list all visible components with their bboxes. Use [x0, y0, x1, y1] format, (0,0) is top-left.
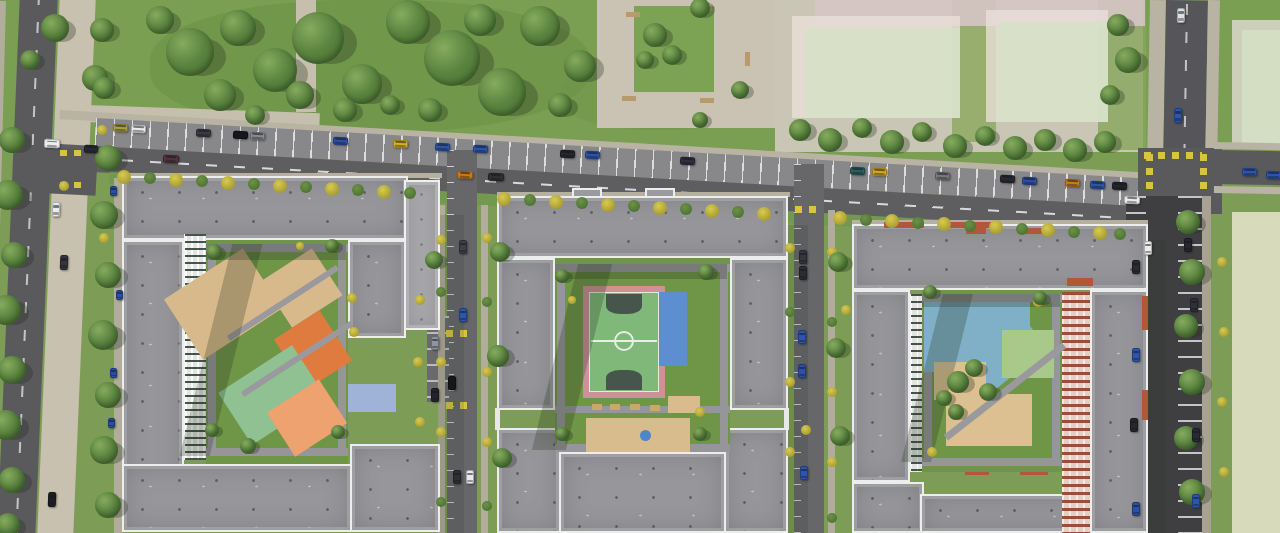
yellow-bush [482, 233, 492, 243]
bush [524, 194, 536, 206]
left-block-north-wing [122, 176, 408, 240]
car [1000, 175, 1015, 184]
right-block-sw-corner [852, 482, 924, 533]
pale-field-east [1232, 212, 1280, 533]
car [196, 129, 211, 138]
tree [425, 251, 443, 269]
yellow-bush [59, 181, 69, 191]
car [1266, 171, 1280, 179]
ghost-building-roof [1242, 30, 1280, 148]
tree [818, 128, 842, 152]
bush [1016, 223, 1028, 235]
car [800, 466, 808, 480]
car [431, 388, 439, 402]
ghost-building-roof [998, 22, 1108, 122]
sand-play-big [586, 418, 690, 452]
connector-wall [784, 408, 789, 430]
yellow-bush [801, 425, 811, 435]
bush [576, 197, 588, 209]
tree [662, 45, 682, 65]
car [250, 132, 265, 141]
tree [1115, 47, 1141, 73]
car [1144, 241, 1152, 255]
bush [732, 206, 744, 218]
tree [146, 6, 174, 34]
tree [424, 30, 480, 86]
tree [693, 427, 707, 441]
car [488, 173, 504, 182]
tree [1107, 14, 1129, 36]
connector-wall [495, 408, 500, 430]
tree [880, 130, 904, 154]
tree [826, 338, 846, 358]
yellow-bush [1041, 223, 1055, 237]
yellow-bush [349, 327, 359, 337]
car [680, 157, 695, 166]
tree [333, 98, 357, 122]
car [1090, 181, 1105, 190]
yellow-bush [377, 185, 391, 199]
tree [95, 262, 121, 288]
terracotta-accent [1067, 278, 1093, 286]
bush [680, 203, 692, 215]
yellow-bush [568, 296, 576, 304]
tree [975, 126, 995, 146]
tree [490, 242, 510, 262]
umbrella-blue [640, 430, 651, 441]
tree [965, 359, 983, 377]
car [163, 155, 179, 164]
tree [828, 252, 848, 272]
bench [745, 52, 750, 66]
tree [245, 105, 265, 125]
tree [1033, 291, 1047, 305]
left-block-se-wing [350, 444, 440, 532]
tree [698, 264, 714, 280]
car [435, 143, 450, 152]
bush [827, 513, 837, 523]
bush [912, 217, 924, 229]
yellow-bush [436, 235, 446, 245]
bush [144, 172, 156, 184]
right-parking-sidewalk [1202, 196, 1211, 533]
bush [964, 220, 976, 232]
tree [1034, 129, 1056, 151]
play-equipment [650, 405, 660, 411]
bush [785, 307, 795, 317]
yellow-bush [827, 387, 837, 397]
car [1132, 502, 1140, 516]
tree [936, 390, 952, 406]
car [393, 140, 408, 149]
bench [626, 12, 640, 17]
tree [947, 371, 969, 393]
yellow-bush [1219, 467, 1229, 477]
bush [1114, 228, 1126, 240]
car [48, 492, 57, 507]
yellow-bush [841, 305, 851, 315]
tree [331, 425, 345, 439]
yellow-bush [325, 182, 339, 196]
tree [692, 112, 708, 128]
car [113, 124, 128, 133]
bush [352, 184, 364, 196]
tree [1179, 369, 1205, 395]
yellow-bush [99, 233, 109, 243]
east-branch-sidewalk [1214, 142, 1280, 150]
tree [643, 23, 667, 47]
tree [380, 95, 400, 115]
car [108, 418, 115, 428]
bush [860, 214, 872, 226]
play-equipment [610, 404, 620, 410]
tree [386, 0, 430, 44]
tree [93, 77, 115, 99]
yellow-bush [785, 243, 795, 253]
yellow-bush [296, 242, 304, 250]
workout-pad-blue [659, 292, 687, 366]
car [110, 186, 117, 196]
yellow-bush [885, 214, 899, 228]
car [431, 336, 439, 350]
tree [564, 50, 596, 82]
tree [1063, 138, 1087, 162]
tree [220, 10, 256, 46]
car [84, 145, 98, 154]
tree [555, 427, 569, 441]
tree [1179, 259, 1205, 285]
car [1190, 298, 1198, 312]
courtyard-path [206, 448, 348, 456]
court-center-circle [614, 331, 634, 351]
car [798, 330, 806, 344]
yellow-bush [415, 295, 425, 305]
bench [622, 96, 636, 101]
courtyard-path [720, 264, 728, 452]
tree [979, 383, 997, 401]
yellow-bush [413, 357, 423, 367]
yellow-bush [1219, 327, 1229, 337]
tree [555, 269, 569, 283]
car [1192, 494, 1200, 508]
tree [325, 239, 339, 253]
car [457, 171, 473, 180]
car [1132, 348, 1140, 362]
ghost-building-roof [806, 28, 960, 118]
yellow-bush [549, 195, 563, 209]
tree [948, 404, 964, 420]
bush [300, 181, 312, 193]
car [1112, 182, 1127, 191]
middle-block-bump [572, 188, 602, 198]
yellow-bush [785, 447, 795, 457]
tree [1094, 131, 1116, 153]
tree [292, 12, 344, 64]
tree [88, 320, 118, 350]
left-block-south-wing [122, 464, 352, 532]
crossing-yellow [795, 206, 823, 213]
car [453, 470, 461, 484]
car [1132, 260, 1140, 274]
tree [487, 345, 509, 367]
yellow-bush [601, 198, 615, 212]
play-equipment [592, 404, 602, 410]
tree [286, 81, 314, 109]
middle-block-bump [645, 188, 675, 198]
car [798, 364, 806, 378]
yellow-bush [117, 170, 131, 184]
car [1242, 168, 1257, 176]
bush [196, 175, 208, 187]
yellow-bush [1217, 257, 1227, 267]
tree [1003, 136, 1027, 160]
courtyard-path [1052, 294, 1060, 466]
crossing-yellow [60, 150, 86, 156]
car [799, 250, 807, 264]
yellow-bush [97, 125, 107, 135]
tree [166, 28, 214, 76]
tree [464, 4, 496, 36]
yellow-bush [221, 176, 235, 190]
yellow-bush [937, 217, 951, 231]
tree [1174, 314, 1198, 338]
tree [206, 244, 222, 260]
tree [41, 14, 69, 42]
tree [95, 145, 121, 171]
car [1022, 177, 1037, 186]
tree [789, 119, 811, 141]
tree [548, 93, 572, 117]
bush [482, 501, 492, 511]
tree [852, 118, 872, 138]
bush [628, 200, 640, 212]
middle-block-south-wing [559, 452, 726, 533]
tree [1176, 210, 1200, 234]
car [333, 137, 348, 146]
east-branch-sidewalk [1214, 186, 1280, 194]
right-block-east-wing [1090, 290, 1148, 533]
bush [1068, 226, 1080, 238]
car [1184, 238, 1192, 252]
car [1177, 8, 1185, 23]
tree [95, 492, 121, 518]
car [52, 202, 61, 217]
car [473, 145, 488, 154]
tree [205, 423, 219, 437]
car [1124, 196, 1140, 205]
yellow-bush [497, 192, 511, 206]
yellow-bush [705, 204, 719, 218]
yellow-bush [169, 173, 183, 187]
car [585, 151, 600, 160]
court-key-bottom [606, 370, 642, 390]
tree [912, 122, 932, 142]
car [466, 470, 474, 484]
yellow-bush [989, 220, 1003, 234]
tree [943, 134, 967, 158]
right-block-east-facade [1062, 292, 1090, 533]
yellow-bush [436, 427, 446, 437]
bush [436, 497, 446, 507]
car [459, 240, 467, 254]
car [110, 368, 117, 378]
tree [478, 68, 526, 116]
bush [404, 187, 416, 199]
car [872, 168, 887, 177]
tree [830, 426, 850, 446]
bush [436, 287, 446, 297]
court-key-top [606, 294, 642, 314]
yellow-bush [927, 447, 937, 457]
yellow-bush [827, 457, 837, 467]
yellow-bush [695, 407, 705, 417]
car [459, 308, 467, 322]
left-block-east-wing-upper [348, 240, 406, 338]
tree [95, 382, 121, 408]
terracotta-accent [1142, 296, 1148, 330]
bush [248, 178, 260, 190]
bush [482, 297, 492, 307]
tree [0, 467, 25, 493]
tree [923, 285, 937, 299]
car [131, 125, 146, 134]
car [116, 290, 123, 300]
middle-block-se-corner [724, 428, 788, 533]
car [233, 131, 248, 140]
play-equipment [630, 404, 640, 410]
car [44, 139, 60, 149]
car [1174, 108, 1182, 123]
car [60, 255, 69, 270]
tree [636, 51, 654, 69]
tree [418, 98, 442, 122]
yellow-bush [1093, 226, 1107, 240]
tree [0, 127, 25, 153]
car [1065, 179, 1080, 188]
tree [90, 436, 118, 464]
yellow-bush [653, 201, 667, 215]
courtyard-path [922, 458, 1062, 466]
block-shadow-east [1146, 240, 1166, 533]
car [1192, 428, 1200, 442]
yellow-bush [1217, 397, 1227, 407]
middle-block-north-wing [497, 196, 788, 258]
terracotta-accent [1142, 390, 1148, 420]
tree [492, 448, 512, 468]
bush [827, 317, 837, 327]
yellow-bush [273, 179, 287, 193]
bench [700, 98, 714, 103]
tree [1100, 85, 1120, 105]
yellow-bush [757, 207, 771, 221]
blue-pad-left-block [348, 384, 396, 412]
yellow-bush [833, 211, 847, 225]
car [1130, 418, 1138, 432]
car [850, 167, 865, 176]
sidewalk-west-of-left-block [114, 178, 122, 533]
yellow-bush [482, 437, 492, 447]
car [448, 376, 456, 390]
yellow-bush [482, 367, 492, 377]
tree [1, 242, 27, 268]
tree [20, 50, 40, 70]
right-block-west-wing [852, 290, 910, 482]
tree [731, 81, 749, 99]
middle-block-east-wing [730, 258, 788, 410]
aerial-site-plan [0, 0, 1280, 533]
tree [90, 18, 114, 42]
tree [90, 201, 118, 229]
car [799, 266, 807, 280]
yellow-bush [415, 417, 425, 427]
car [560, 150, 575, 159]
tree [204, 79, 236, 111]
yellow-bush [785, 377, 795, 387]
car [935, 172, 950, 181]
tree [520, 6, 560, 46]
yellow-bush [436, 357, 446, 367]
tree [240, 438, 256, 454]
yellow-bush [347, 293, 357, 303]
